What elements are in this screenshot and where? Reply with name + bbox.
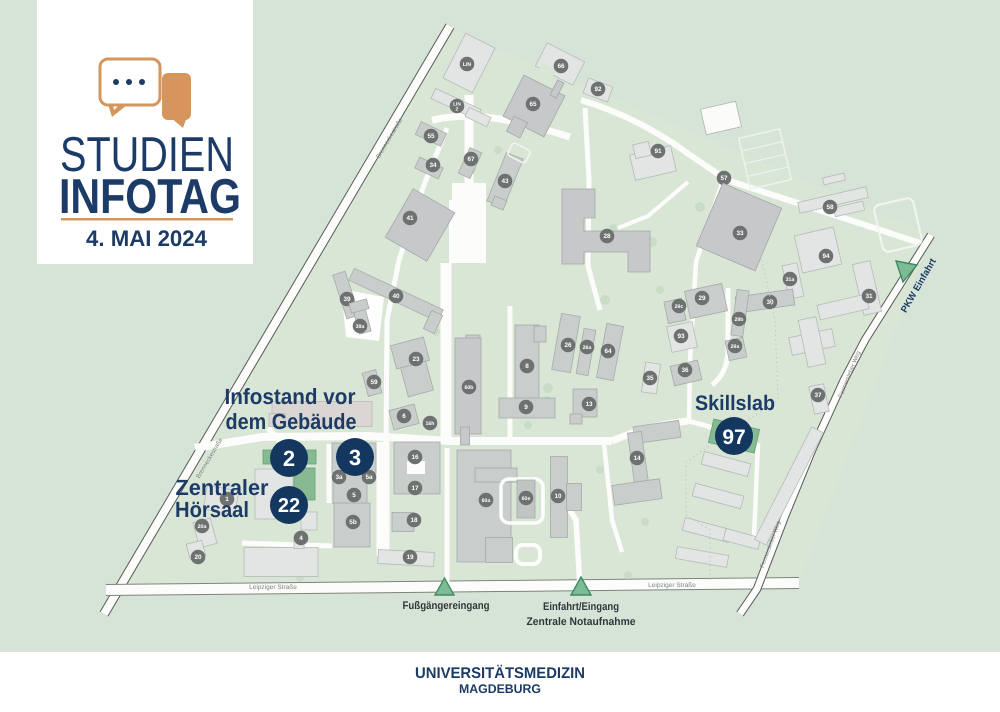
- svg-text:Leipziger Straße: Leipziger Straße: [249, 584, 297, 591]
- svg-text:17: 17: [411, 485, 419, 492]
- svg-text:5a: 5a: [365, 474, 373, 481]
- svg-text:93: 93: [677, 333, 685, 340]
- svg-text:28: 28: [603, 233, 611, 240]
- svg-text:91: 91: [654, 148, 662, 155]
- svg-text:37: 37: [814, 392, 822, 399]
- svg-text:Hörsaal: Hörsaal: [175, 497, 249, 522]
- svg-text:31: 31: [865, 293, 873, 300]
- svg-text:19: 19: [406, 554, 414, 561]
- svg-text:58: 58: [826, 204, 834, 211]
- svg-text:10: 10: [554, 493, 562, 500]
- svg-text:5: 5: [352, 492, 356, 499]
- svg-text:41: 41: [406, 215, 414, 222]
- svg-text:67: 67: [467, 156, 475, 163]
- svg-text:66: 66: [557, 63, 565, 70]
- svg-text:29a: 29a: [731, 344, 740, 350]
- svg-text:Einfahrt/Eingang: Einfahrt/Eingang: [543, 601, 619, 613]
- svg-text:64: 64: [604, 348, 612, 355]
- svg-text:59: 59: [370, 379, 378, 386]
- svg-text:UNIVERSITÄTSMEDIZIN: UNIVERSITÄTSMEDIZIN: [415, 664, 585, 682]
- svg-text:5b: 5b: [349, 519, 357, 526]
- svg-text:65: 65: [529, 101, 537, 108]
- svg-text:Leipziger Straße: Leipziger Straße: [648, 582, 696, 589]
- svg-text:2: 2: [283, 446, 295, 471]
- svg-text:43: 43: [501, 178, 509, 185]
- svg-text:26: 26: [564, 342, 572, 349]
- svg-text:3a: 3a: [335, 474, 343, 481]
- svg-text:MAGDEBURG: MAGDEBURG: [459, 682, 541, 696]
- svg-text:INFOTAG: INFOTAG: [59, 170, 241, 224]
- svg-text:31a: 31a: [786, 277, 795, 283]
- svg-text:9: 9: [524, 404, 528, 411]
- svg-text:18: 18: [410, 517, 418, 524]
- svg-text:8: 8: [525, 363, 529, 370]
- svg-text:20: 20: [194, 554, 202, 561]
- svg-text:Zentrale Notaufnahme: Zentrale Notaufnahme: [527, 616, 636, 628]
- svg-text:dem Gebäude: dem Gebäude: [226, 409, 357, 434]
- svg-text:Infostand vor: Infostand vor: [225, 384, 356, 409]
- svg-text:3: 3: [349, 445, 361, 470]
- svg-text:20a: 20a: [198, 524, 207, 530]
- svg-text:94: 94: [822, 253, 830, 260]
- svg-text:40: 40: [392, 293, 400, 300]
- svg-text:60e: 60e: [522, 496, 531, 502]
- svg-text:13: 13: [585, 401, 593, 408]
- svg-text:35: 35: [646, 375, 654, 382]
- svg-text:55: 55: [427, 133, 435, 140]
- svg-text:2: 2: [456, 107, 459, 113]
- svg-text:LIN: LIN: [453, 102, 461, 108]
- svg-text:29: 29: [698, 295, 706, 302]
- svg-text:LIN: LIN: [463, 62, 472, 68]
- svg-text:22: 22: [278, 495, 300, 517]
- svg-text:33: 33: [736, 230, 744, 237]
- svg-text:34: 34: [429, 162, 437, 169]
- svg-text:29c: 29c: [675, 304, 684, 310]
- svg-text:4. MAI 2024: 4. MAI 2024: [86, 226, 207, 251]
- svg-text:36: 36: [681, 367, 689, 374]
- svg-text:29b: 29b: [735, 317, 744, 323]
- svg-text:16h: 16h: [426, 421, 435, 427]
- svg-text:92: 92: [594, 86, 602, 93]
- svg-text:26a: 26a: [583, 345, 592, 351]
- svg-text:6: 6: [402, 413, 406, 420]
- svg-text:60b: 60b: [465, 385, 474, 391]
- svg-text:14: 14: [633, 455, 641, 462]
- svg-text:16: 16: [411, 454, 419, 461]
- svg-text:57: 57: [720, 175, 728, 182]
- svg-text:60a: 60a: [482, 498, 491, 504]
- svg-text:4: 4: [299, 535, 303, 542]
- svg-text:23: 23: [412, 356, 420, 363]
- svg-text:Fußgängereingang: Fußgängereingang: [403, 600, 490, 612]
- svg-text:97: 97: [722, 426, 745, 449]
- svg-text:Skillslab: Skillslab: [695, 392, 775, 415]
- svg-text:39: 39: [343, 296, 351, 303]
- svg-text:39a: 39a: [356, 324, 365, 330]
